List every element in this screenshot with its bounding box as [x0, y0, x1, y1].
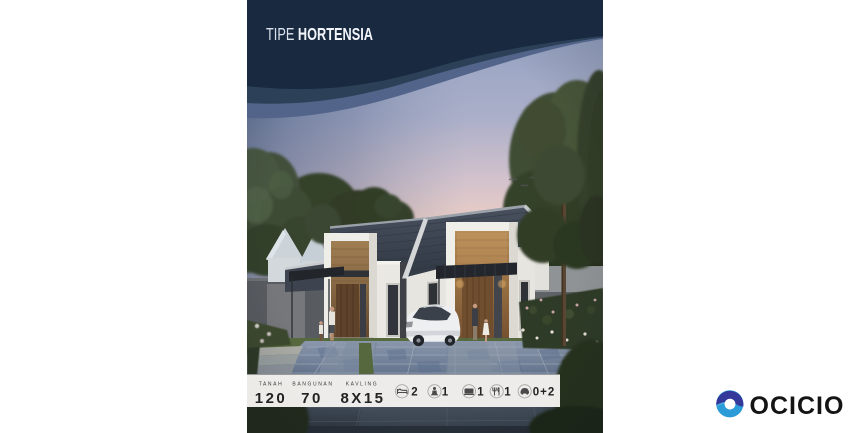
svg-text:TANAH: TANAH: [259, 382, 284, 388]
svg-text:70: 70: [301, 390, 323, 407]
svg-text:120: 120: [255, 390, 288, 407]
svg-text:0+2: 0+2: [533, 387, 556, 399]
svg-text:KAVLING: KAVLING: [346, 382, 379, 388]
svg-text:8X15: 8X15: [340, 390, 385, 407]
svg-text:2: 2: [411, 387, 417, 399]
svg-text:TIPE HORTENSIA: TIPE HORTENSIA: [266, 24, 373, 44]
svg-text:1: 1: [442, 387, 449, 399]
svg-text:1: 1: [504, 387, 511, 399]
svg-text:BANGUNAN: BANGUNAN: [292, 382, 333, 388]
svg-text:1: 1: [477, 387, 484, 399]
svg-text:OCICIO: OCICIO: [750, 392, 845, 420]
